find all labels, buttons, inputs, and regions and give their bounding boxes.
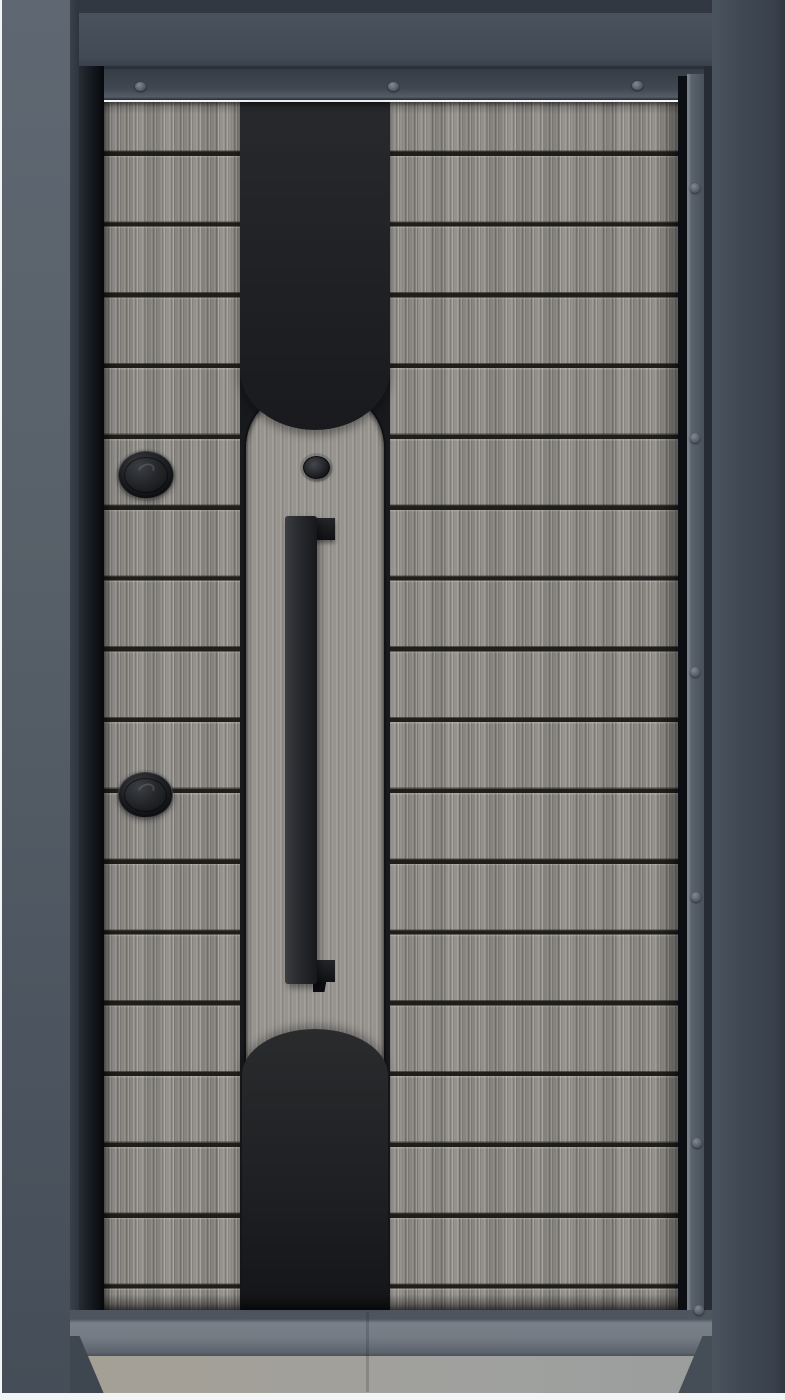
frame-left-recess <box>79 66 104 1344</box>
frame-left-pillar <box>2 0 70 1394</box>
pull-handle <box>285 516 317 984</box>
screw-head-icon <box>690 183 700 193</box>
frame-left-pillar-edge <box>70 0 79 1348</box>
door-photograph <box>0 0 785 1400</box>
frame-right-recess <box>678 76 687 1326</box>
concrete-floor <box>70 1356 712 1394</box>
door-leaf <box>104 102 678 1310</box>
keyhole-cover-lower <box>118 772 173 818</box>
threshold-sill <box>70 1310 712 1356</box>
screw-head-icon <box>632 81 643 90</box>
frame-right-bevel <box>687 74 704 1342</box>
screw-head-icon <box>690 433 700 443</box>
keyhole-cover-upper <box>118 451 174 499</box>
frame-right-pillar <box>712 0 785 1400</box>
cylinder-knob <box>303 456 330 479</box>
screw-head-icon <box>690 667 700 677</box>
black-bottom-dome <box>242 1029 388 1310</box>
screw-head-icon <box>694 1305 704 1315</box>
screw-head-icon <box>692 1138 702 1148</box>
photo-bottom-margin <box>0 1393 785 1400</box>
frame-right-seam <box>704 66 712 1346</box>
frame-top-edge <box>62 0 785 13</box>
screw-head-icon <box>135 82 146 91</box>
screw-head-icon <box>691 892 701 902</box>
floor-tile-seam <box>366 1312 369 1392</box>
black-top-cap <box>240 102 390 430</box>
frame-top-band <box>62 13 714 69</box>
screw-head-icon <box>388 82 399 91</box>
